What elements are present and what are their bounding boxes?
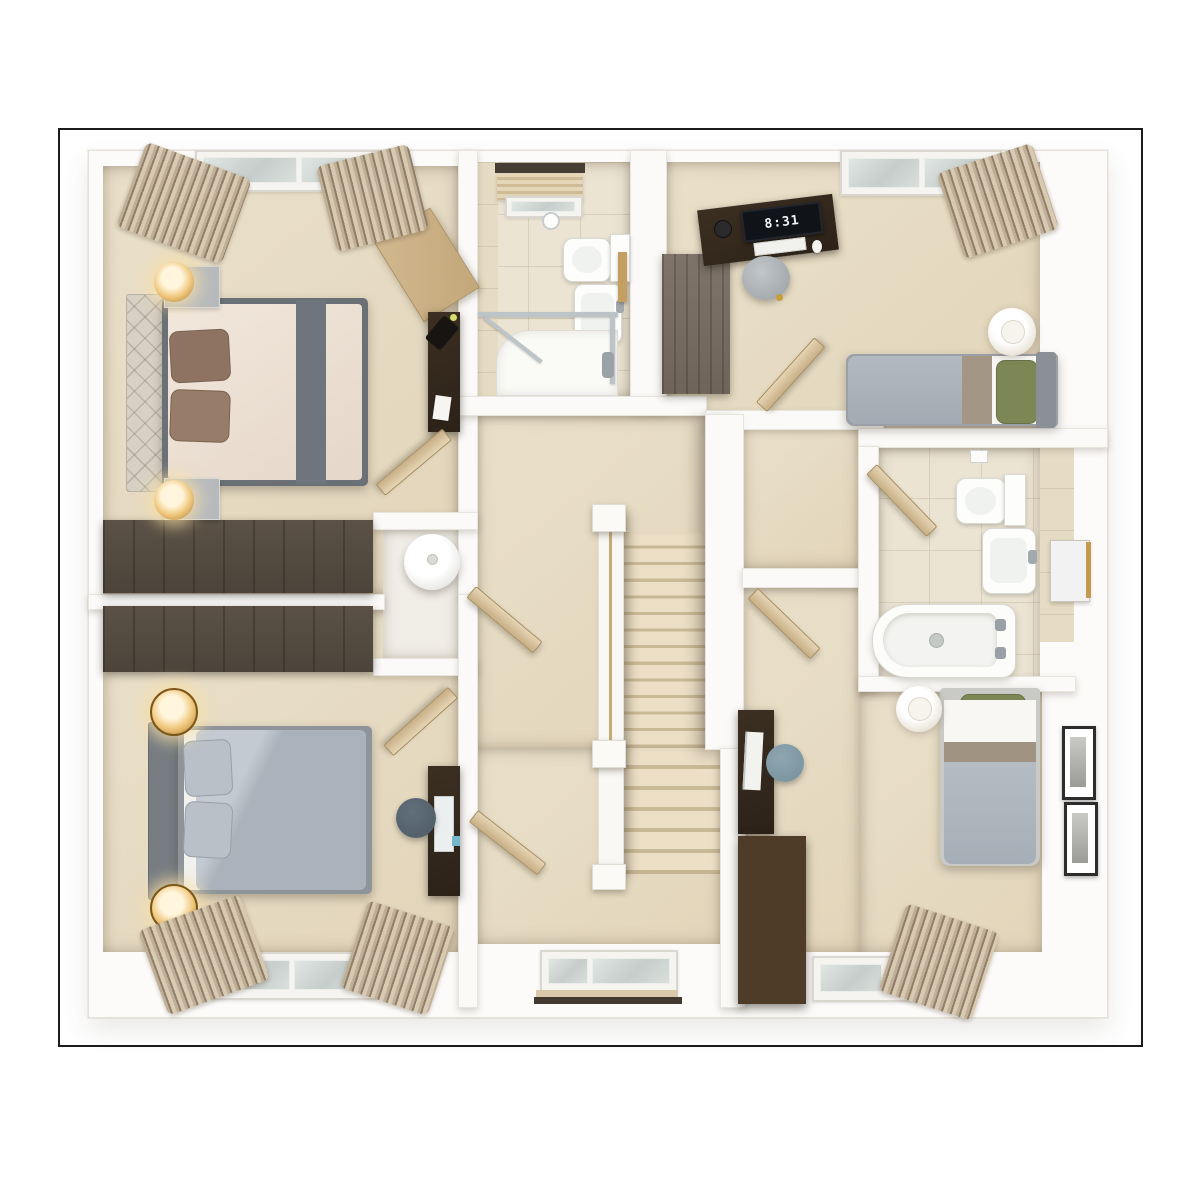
bedroom4-bed-runner [944, 742, 1036, 764]
bathtub-tap-1 [995, 619, 1006, 631]
bathroom-cabinet-trim [1086, 542, 1091, 598]
bedroom4-bed-sheet [944, 700, 1036, 744]
newel-post-bottom [592, 864, 626, 890]
bedroom1-pillow-1 [169, 328, 232, 383]
bedroom3-green-pillow [996, 360, 1038, 424]
wall-bathroom-north [858, 428, 1108, 448]
bedroom1-pillow-2 [169, 389, 231, 443]
staircase-lower-flight [622, 748, 722, 874]
bedroom4-picture-1 [1062, 726, 1096, 800]
bedroom3-pouf-tassel [776, 294, 783, 301]
ensuite-window-pelmet [495, 163, 585, 173]
bedroom3-wardrobe [662, 254, 730, 394]
bedroom3-lamp-top [1001, 320, 1025, 344]
bedroom1-bed-runner [296, 300, 326, 484]
monitor-clock-time: 8:31 [764, 212, 801, 231]
bedroom1-lamp-bulb [450, 314, 457, 321]
cylinder-cap [427, 554, 438, 565]
bedroom3-headboard [1036, 352, 1056, 428]
ensuite-toilet [563, 238, 611, 282]
bedroom4-white-lamp [896, 686, 942, 732]
bedroom4-lamp-top [908, 697, 932, 721]
bedroom1-paper [432, 395, 451, 421]
shower-head [602, 352, 614, 378]
bedroom3-white-lamp [988, 308, 1036, 356]
bedroom4-picture-1-art [1070, 737, 1086, 787]
bathtub-tap-2 [995, 647, 1006, 659]
ensuite-window-pane [511, 201, 575, 212]
bathroom-cistern [1004, 474, 1026, 526]
bedroom4-duvet [944, 762, 1036, 864]
shower-screen-top-bar [478, 312, 618, 317]
bedroom2-stool [396, 798, 436, 838]
bedroom3-alarm-clock [714, 220, 732, 238]
bathroom-basin-tap [1028, 550, 1037, 564]
bedroom2-lamp-top [150, 688, 198, 736]
bedroom3-mouse [812, 240, 822, 253]
wall-landing-west [458, 594, 478, 1008]
bedroom2-wardrobe [103, 606, 373, 672]
bedroom1-headboard [126, 294, 164, 492]
bedroom4-chair [766, 744, 804, 782]
ensuite-wall-tiles [476, 162, 498, 396]
hall-window-pane-2 [592, 958, 670, 984]
staircase-upper-flight [622, 532, 705, 748]
bathroom-basin-bowl [990, 538, 1027, 583]
hot-water-cylinder [404, 534, 460, 590]
bedroom2-desk-accessory [452, 836, 460, 846]
newel-post-mid [592, 740, 626, 768]
bedroom2-pillow-1 [183, 739, 234, 797]
bedroom4-chest-of-drawers [738, 836, 806, 1004]
bedroom1-wardrobe [103, 520, 373, 593]
bathroom-toilet [956, 478, 1006, 524]
corridor-floor [742, 414, 860, 568]
bedroom4-window-pane-1 [820, 964, 882, 992]
ensuite-toilet-bowl [572, 246, 602, 273]
bedroom1-lamp-bottom [154, 480, 194, 520]
hall-window-pane-1 [548, 958, 588, 984]
bedroom3-duvet [848, 356, 962, 424]
ensuite-towel-ring [542, 212, 560, 230]
bedroom2-headboard [148, 722, 180, 900]
bedroom3-pouf [742, 256, 790, 300]
wall-cupboard-north [373, 512, 478, 530]
hall-window [540, 950, 678, 994]
bedroom4-picture-2 [1064, 802, 1098, 876]
bedroom4-picture-2-art [1072, 813, 1088, 863]
stair-handrail [609, 516, 612, 744]
hall-window-base [534, 997, 682, 1004]
bedroom3-window-pane-1 [848, 158, 920, 188]
wall-landing-north [458, 396, 707, 416]
bedroom4-monitor [742, 732, 763, 791]
bedroom2-monitor [434, 796, 454, 852]
bedroom2-pillow-2 [183, 801, 234, 859]
bathroom-bathtub [872, 604, 1016, 678]
bedroom3-bed-runner [962, 356, 992, 424]
wall-stairwell-east [705, 414, 744, 750]
ensuite-wood-shelf [618, 252, 627, 302]
bathroom-mirror-cabinet [1050, 540, 1090, 602]
bathroom-toilet-bowl [965, 487, 996, 515]
newel-post-top [592, 504, 626, 532]
wall-bedroom4-north-stub [742, 568, 864, 588]
floor-plan-render: 8:31 [0, 0, 1200, 1200]
bathtub-drain [929, 633, 944, 648]
bedroom1-lamp-top [154, 262, 194, 302]
bathroom-roll-holder [970, 450, 988, 463]
